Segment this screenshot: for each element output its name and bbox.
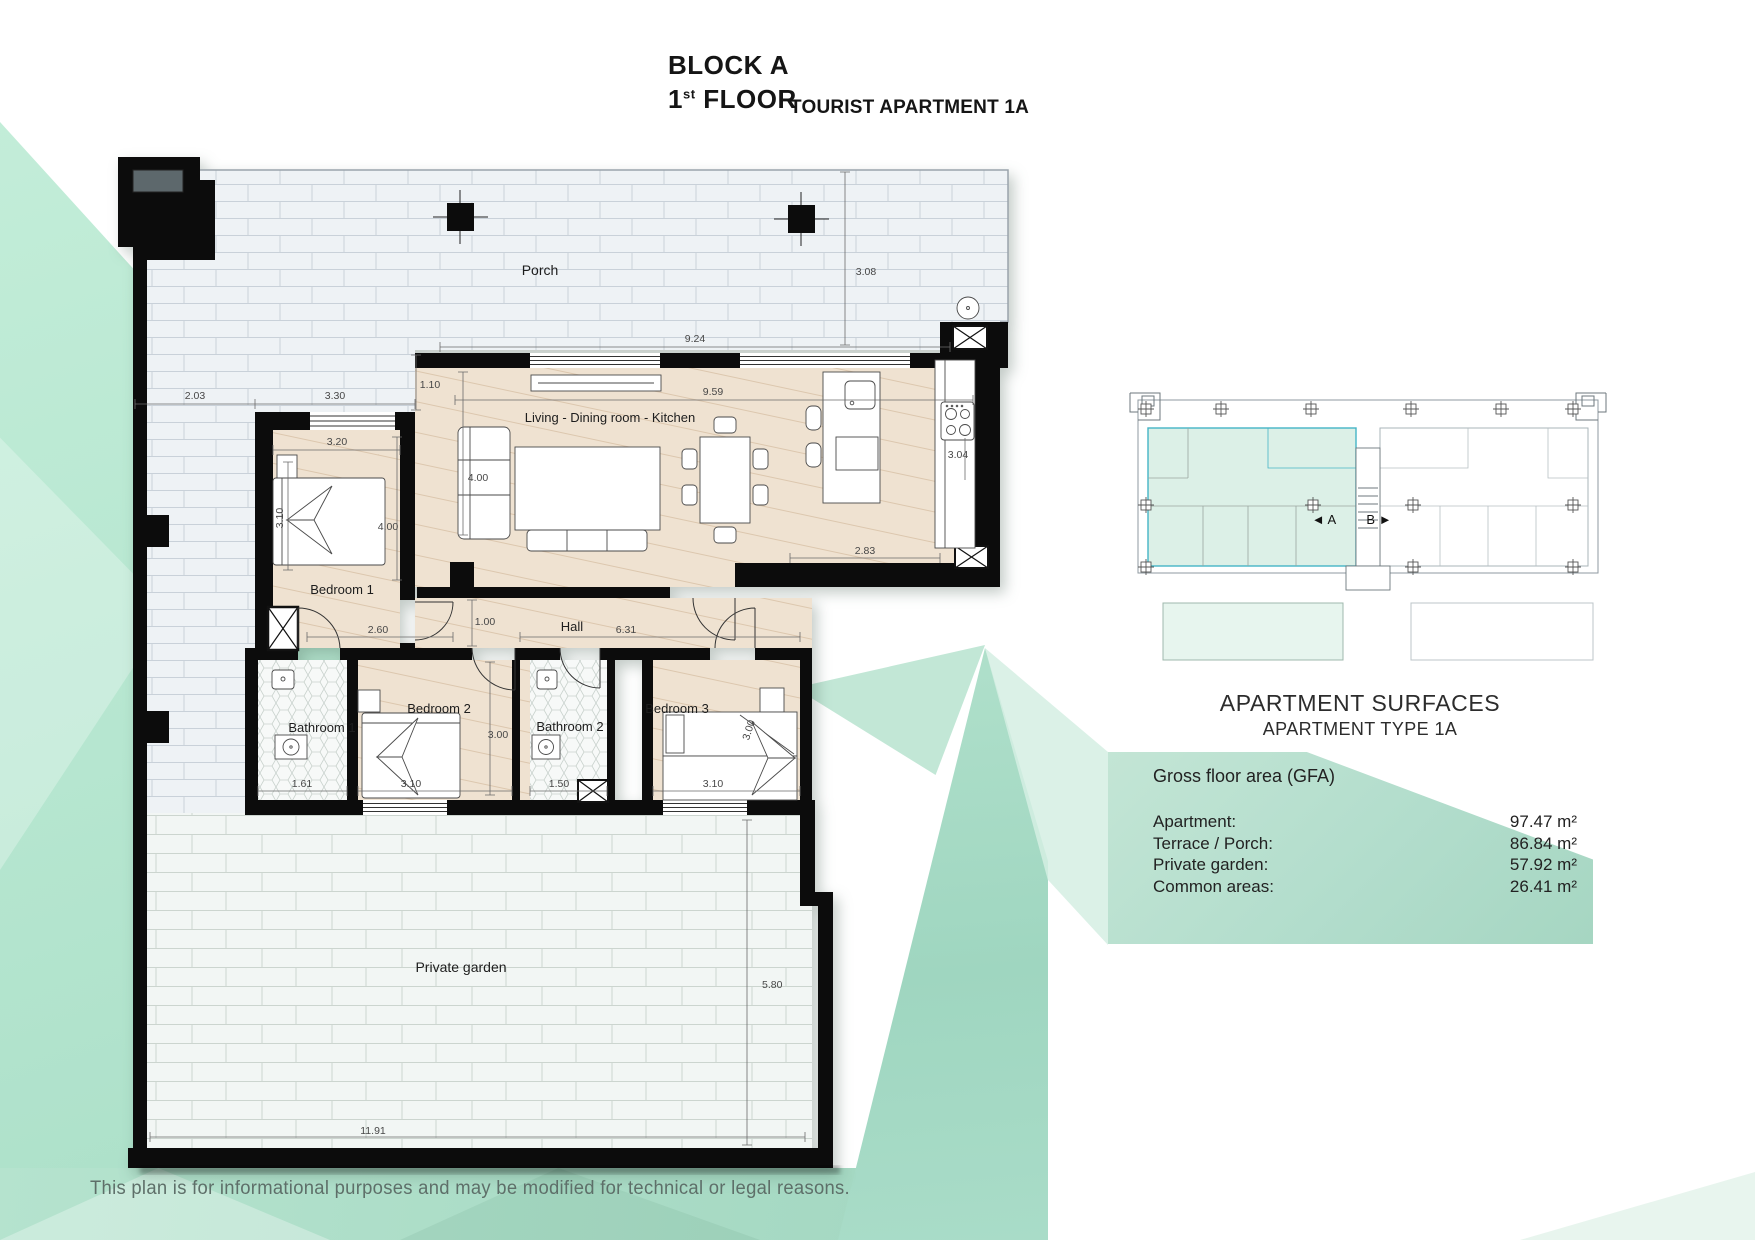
- label-bathroom1: Bathroom 1: [288, 720, 355, 735]
- dim-bathroom2-width: 1.50: [549, 778, 570, 790]
- dim-bedrooms-depth: 3.00: [488, 729, 509, 741]
- row-value: 86.84 m²: [1510, 833, 1577, 855]
- background-corner-facet: [1520, 1172, 1755, 1240]
- floor-title: 1st FLOOR: [668, 84, 797, 115]
- dim-bedroom1-width: 3.20: [327, 436, 348, 448]
- dim-porch-depth: 3.08: [856, 266, 877, 278]
- dim-bedroom1-side: 3.10: [274, 508, 286, 529]
- key-plan-unit-a-highlight: [1148, 428, 1356, 566]
- dim-garden-depth: 5.80: [762, 979, 783, 991]
- row-label: Private garden:: [1153, 854, 1268, 876]
- sheet-title: BLOCK A 1st FLOOR: [668, 50, 797, 115]
- dim-bathroom1-width: 1.61: [292, 778, 313, 790]
- floor-ordinal: st: [683, 86, 696, 101]
- table-row: Apartment: 97.47 m²: [1153, 811, 1577, 833]
- dim-hall-left: 2.60: [368, 624, 389, 636]
- dim-bedroom1-top: 3.30: [325, 390, 346, 402]
- surfaces-heading: APARTMENT SURFACES APARTMENT TYPE 1A: [1125, 690, 1595, 740]
- dim-hall-nook: 1.00: [475, 616, 496, 628]
- gfa-heading: Gross floor area (GFA): [1153, 766, 1593, 787]
- table-row: Common areas: 26.41 m²: [1153, 876, 1577, 898]
- row-label: Terrace / Porch:: [1153, 833, 1273, 855]
- surfaces-title: APARTMENT SURFACES: [1125, 690, 1595, 717]
- dim-bedroom2-width: 3.10: [401, 778, 422, 790]
- dim-porch-width: 9.24: [685, 333, 706, 345]
- dim-kitchen-bottom: 2.83: [855, 545, 876, 557]
- row-label: Common areas:: [1153, 876, 1274, 898]
- surfaces-table: Gross floor area (GFA) Apartment: 97.47 …: [1108, 752, 1593, 944]
- label-bedroom1: Bedroom 1: [310, 582, 374, 597]
- row-label: Apartment:: [1153, 811, 1236, 833]
- dim-living-width: 9.59: [703, 386, 724, 398]
- label-bedroom3: Bedroom 3: [645, 701, 709, 716]
- floor-plan: 9.24 3.08 2.03 3.30 1.10 9.59 4.00 3.20 …: [100, 150, 1020, 1180]
- apartment-title: TOURIST APARTMENT 1A: [790, 97, 1029, 119]
- key-plan-label-b: B ►: [1366, 512, 1391, 527]
- surfaces-rows: Apartment: 97.47 m² Terrace / Porch: 86.…: [1153, 811, 1577, 897]
- dim-living-height: 4.00: [468, 472, 489, 484]
- key-plan: ◄ A B ►: [1128, 388, 1613, 678]
- row-value: 97.47 m²: [1510, 811, 1577, 833]
- dim-terrace-left: 2.03: [185, 390, 206, 402]
- label-garden: Private garden: [415, 959, 506, 975]
- key-plan-svg: ◄ A B ►: [1128, 388, 1613, 678]
- row-value: 57.92 m²: [1510, 854, 1577, 876]
- floor-number: 1: [668, 84, 683, 114]
- dim-kitchen-side: 3.04: [948, 449, 969, 461]
- dim-bedroom3-width: 3.10: [703, 778, 724, 790]
- surfaces-subtitle: APARTMENT TYPE 1A: [1125, 719, 1595, 740]
- dim-hall-right: 6.31: [616, 624, 637, 636]
- dim-garden-width: 11.91: [360, 1125, 386, 1137]
- block-title: BLOCK A: [668, 50, 797, 81]
- key-plan-unit-b: [1380, 428, 1588, 566]
- plan-shadow: [140, 1166, 840, 1174]
- table-row: Private garden: 57.92 m²: [1153, 854, 1577, 876]
- table-row: Terrace / Porch: 86.84 m²: [1153, 833, 1577, 855]
- label-living: Living - Dining room - Kitchen: [525, 410, 696, 425]
- floor-plan-svg: 9.24 3.08 2.03 3.30 1.10 9.59 4.00 3.20 …: [100, 150, 1020, 1180]
- dim-wall-offset: 1.10: [420, 379, 441, 391]
- label-bathroom2: Bathroom 2: [536, 719, 603, 734]
- label-bedroom2: Bedroom 2: [407, 701, 471, 716]
- dim-bedroom1-height: 4.00: [378, 521, 399, 533]
- key-plan-label-a: ◄ A: [1312, 512, 1337, 527]
- key-plan-terrace-b: [1411, 603, 1593, 660]
- disclaimer-text: This plan is for informational purposes …: [90, 1178, 850, 1200]
- row-value: 26.41 m²: [1510, 876, 1577, 898]
- label-porch: Porch: [522, 262, 559, 278]
- label-hall: Hall: [561, 619, 584, 634]
- key-plan-terrace-a: [1163, 603, 1343, 660]
- floor-word: FLOOR: [703, 84, 797, 114]
